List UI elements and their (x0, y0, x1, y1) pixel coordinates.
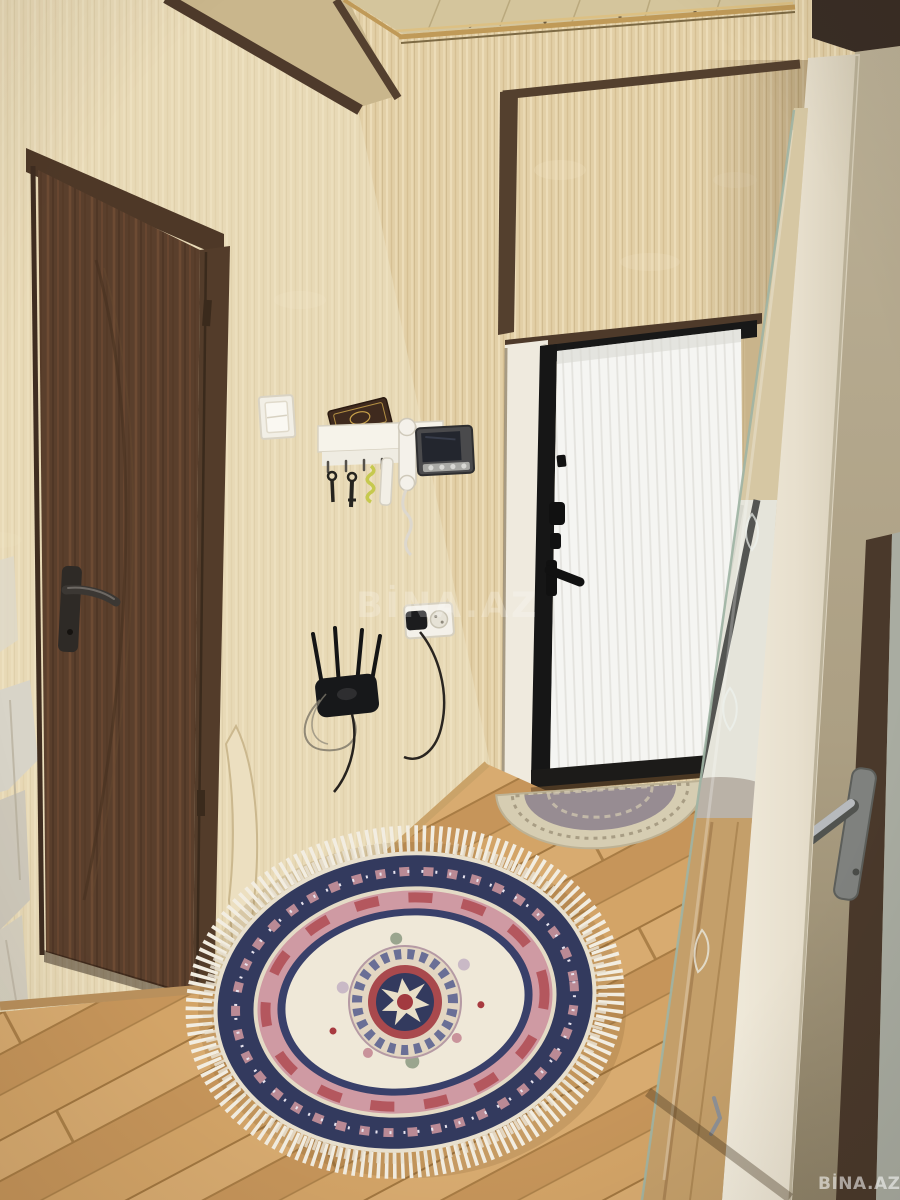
watermark-center: BİNA.AZ (356, 584, 540, 626)
hallway-photo: BİNA.AZ BİNA.AZ (0, 0, 900, 1200)
watermark-corner: BİNA.AZ (818, 1172, 900, 1194)
hallway-scene: BİNA.AZ BİNA.AZ (0, 0, 900, 1200)
